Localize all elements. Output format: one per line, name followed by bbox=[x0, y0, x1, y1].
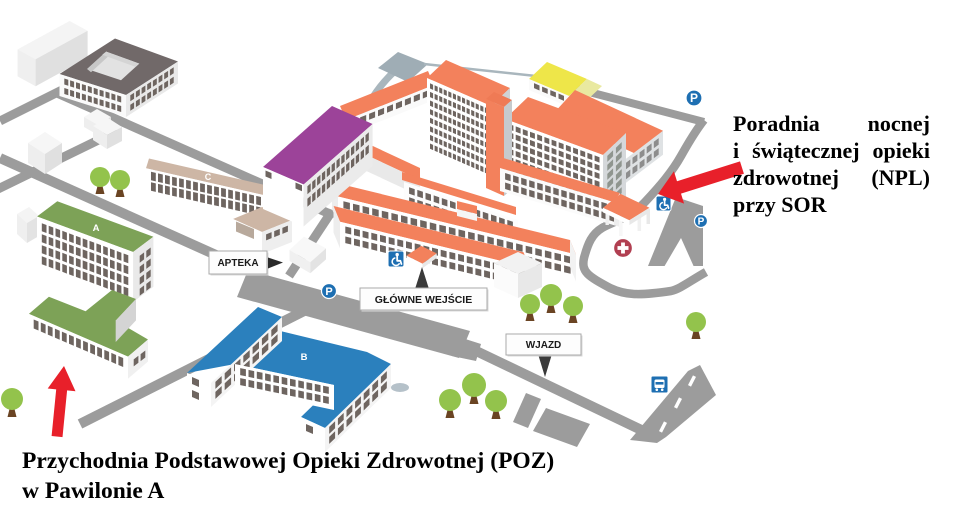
svg-text:P: P bbox=[698, 216, 705, 227]
svg-text:P: P bbox=[325, 286, 332, 298]
svg-text:P: P bbox=[690, 91, 698, 105]
svg-text:A: A bbox=[93, 223, 100, 234]
svg-text:C: C bbox=[205, 172, 212, 182]
svg-text:GŁÓWNE WEJŚCIE: GŁÓWNE WEJŚCIE bbox=[375, 293, 472, 306]
svg-text:WJAZD: WJAZD bbox=[526, 340, 562, 351]
svg-text:APTEKA: APTEKA bbox=[217, 258, 258, 269]
svg-text:B: B bbox=[301, 352, 308, 363]
